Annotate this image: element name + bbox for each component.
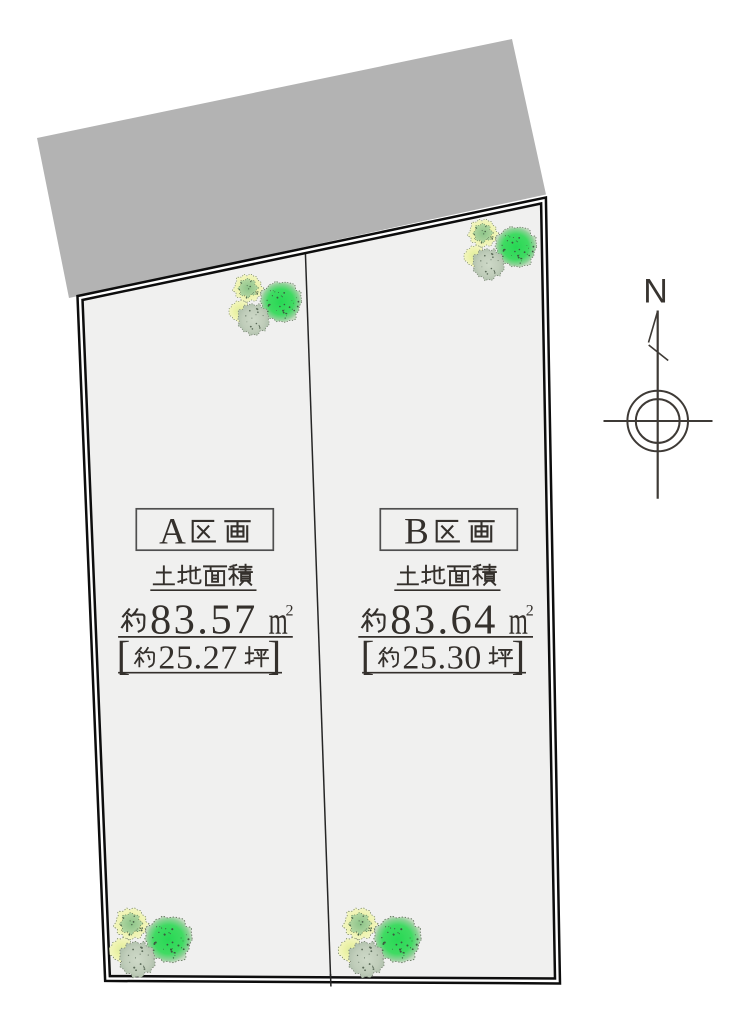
svg-text:A: A: [159, 512, 186, 553]
svg-text:B: B: [404, 512, 429, 553]
svg-text:[: [: [361, 633, 375, 679]
svg-text:25.27: 25.27: [158, 640, 238, 677]
svg-text:2: 2: [286, 603, 294, 620]
svg-text:[: [: [117, 633, 131, 679]
svg-text:]: ]: [512, 633, 526, 679]
svg-text:25.30: 25.30: [402, 640, 482, 677]
svg-text:]: ]: [268, 633, 282, 679]
svg-text:N: N: [643, 273, 668, 311]
svg-text:2: 2: [526, 603, 534, 620]
